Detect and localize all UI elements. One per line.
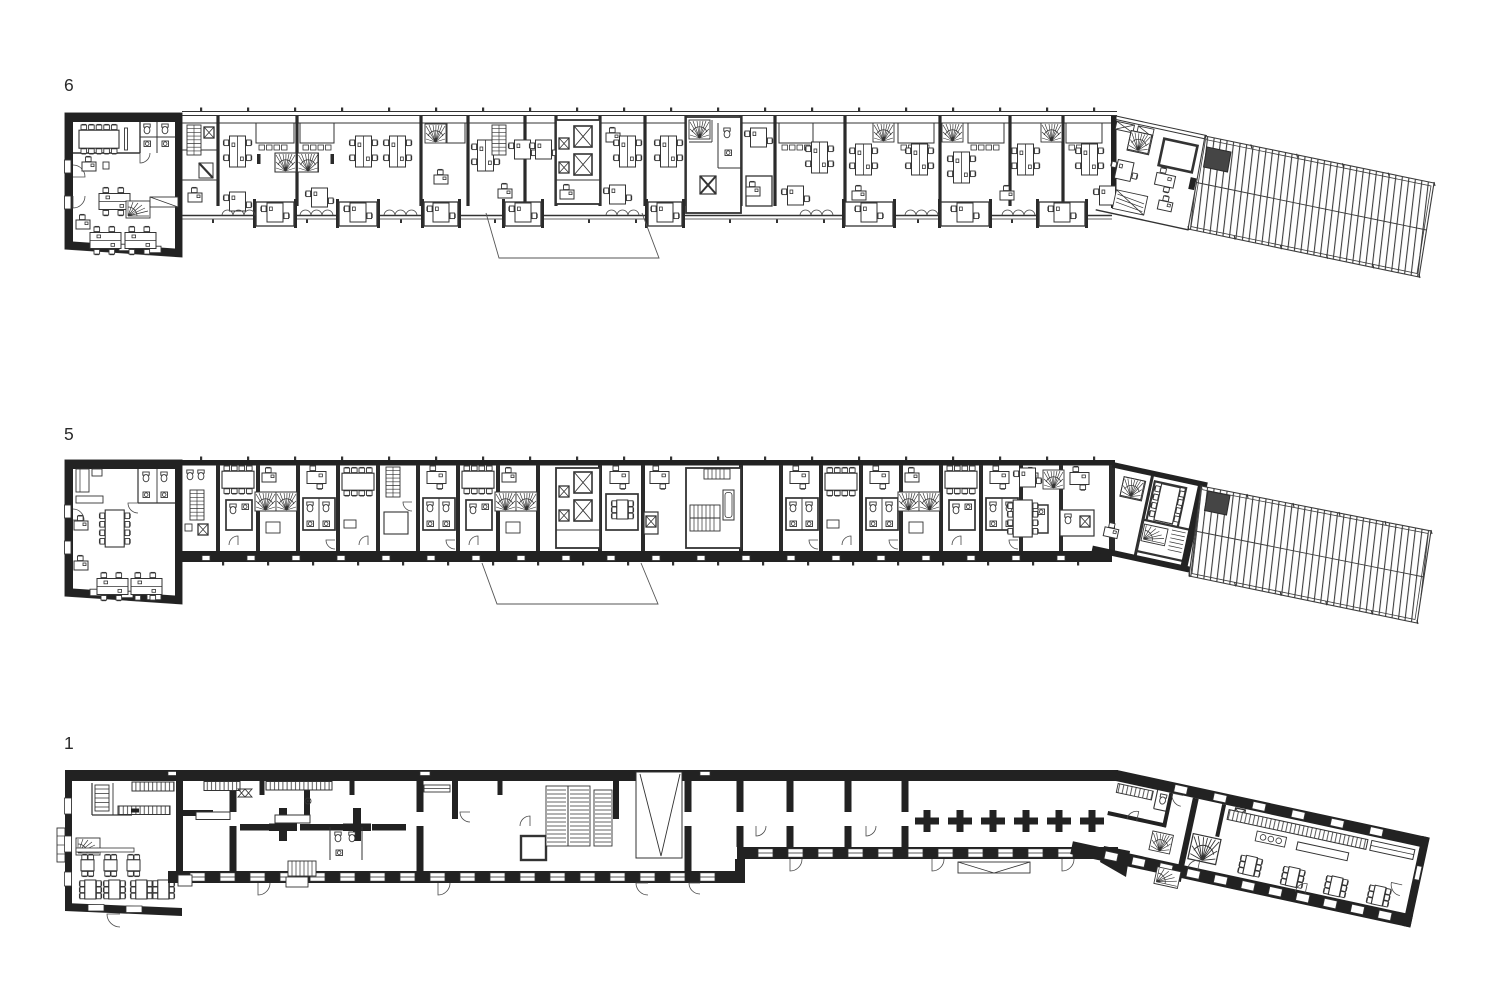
svg-text:6: 6 — [64, 75, 74, 95]
svg-text:5: 5 — [64, 424, 74, 444]
svg-text:1: 1 — [64, 733, 74, 753]
